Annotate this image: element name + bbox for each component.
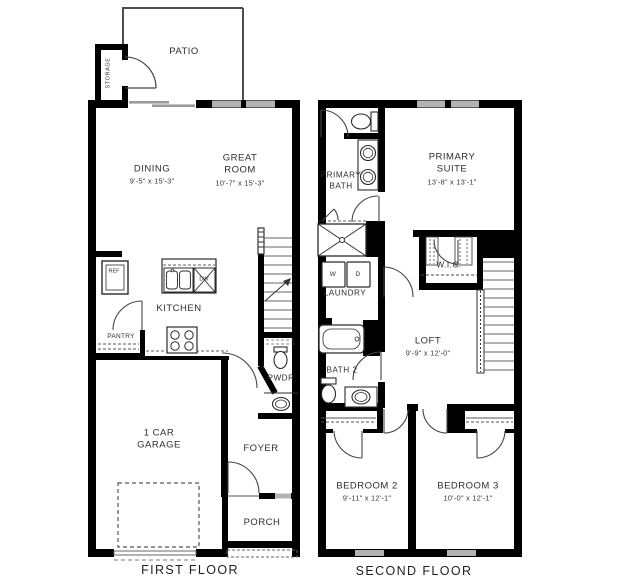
- bath2-sink-icon: [345, 387, 377, 407]
- storage-door-arc: [125, 57, 156, 88]
- refrigerator-icon: [102, 261, 128, 294]
- room-label-patio: PATIO: [169, 46, 199, 58]
- room-label-kitchen: KITCHEN: [156, 303, 201, 315]
- room-label-loft: LOFT 9'-9" x 12'-0": [406, 335, 451, 358]
- room-label-bath2: BATH 2: [326, 366, 357, 377]
- kitchen-sink-icon: [164, 268, 193, 292]
- room-label-garage: 1 CAR GARAGE: [135, 428, 183, 453]
- room-label-dining: DINING 9'-5" x 15'-3": [130, 163, 175, 186]
- room-label-bedroom2: BEDROOM 2 9'-11" x 12'-1": [336, 480, 398, 503]
- second-floor-title: SECOND FLOOR: [356, 563, 473, 579]
- window: [447, 550, 476, 556]
- ref-label: REF: [109, 268, 120, 275]
- bathtub-icon: [319, 325, 364, 353]
- primary-toilet-icon: [352, 112, 379, 131]
- floor-plan-drawing: [0, 0, 617, 582]
- interior-walls-first-floor: [88, 251, 300, 549]
- window: [212, 101, 241, 108]
- bedroom2-name: BEDROOM 2: [336, 480, 398, 492]
- pantry-shelves: [98, 344, 139, 349]
- bath2-toilet-icon: [321, 378, 336, 403]
- bedroom3-closet-door-arc: [477, 431, 505, 458]
- loft-name: LOFT: [406, 335, 451, 347]
- washer-label: W: [330, 271, 336, 279]
- window: [417, 101, 445, 108]
- first-floor-title: FIRST FLOOR: [141, 562, 239, 578]
- room-label-primary-bath: PRIMARY BATH: [315, 170, 367, 191]
- window: [246, 101, 275, 108]
- room-label-great-room: GREAT ROOM 10'-7" x 15'-3": [215, 152, 265, 187]
- dw-label: DW: [199, 276, 208, 283]
- room-label-wic: W.I.C.: [436, 261, 461, 272]
- shower-icon: [318, 221, 366, 256]
- loft-dims: 9'-9" x 12'-0": [406, 349, 451, 359]
- bedroom2-closet-door-arc: [334, 431, 362, 458]
- first-floor-plan: [88, 8, 300, 560]
- bedroom2-dims: 9'-11" x 12'-1": [336, 494, 398, 504]
- bedroom3-name: BEDROOM 3: [437, 480, 499, 492]
- hall-door-arc: [383, 267, 413, 297]
- primary-suite-door-arc: [352, 196, 379, 222]
- room-label-bedroom3: BEDROOM 3 10'-0" x 12'-1": [437, 480, 499, 503]
- pantry-door-arc: [113, 301, 142, 330]
- sliding-door: [129, 101, 169, 104]
- car-space: [118, 483, 199, 547]
- stair-up-arrow: [283, 278, 291, 286]
- room-label-storage: STORAGE: [105, 58, 112, 89]
- bedroom3-entry-door-arc: [423, 409, 447, 433]
- garage-door: [114, 551, 196, 560]
- garage-name: 1 CAR GARAGE: [135, 428, 183, 453]
- stove-icon: [146, 327, 228, 353]
- bedroom3-dims: 10'-0" x 12'-1": [437, 494, 499, 504]
- primary-suite-dims: 13'-8" x 13'-1": [424, 177, 480, 187]
- dining-dims: 9'-5" x 15'-3": [130, 177, 175, 187]
- dryer-label: D: [356, 271, 361, 279]
- bedroom-closet-rods: [321, 418, 513, 422]
- floor-plan-canvas: PATIO STORAGE DINING 9'-5" x 15'-3" GREA…: [0, 0, 617, 582]
- bedroom2-entry-door-arc: [384, 409, 408, 433]
- great-room-name: GREAT ROOM: [215, 152, 265, 177]
- window: [275, 494, 293, 499]
- room-label-pwdr: PWDR: [267, 374, 294, 385]
- room-label-pantry: PANTRY: [107, 333, 135, 341]
- dining-name: DINING: [130, 163, 175, 175]
- front-door-arc: [228, 462, 259, 493]
- porch-steps: [227, 550, 297, 557]
- primary-bath-name: PRIMARY BATH: [315, 170, 367, 191]
- pwdr-toilet-icon: [266, 340, 294, 369]
- room-label-porch: PORCH: [244, 517, 281, 529]
- window: [451, 101, 479, 108]
- room-label-primary-suite: PRIMARY SUITE 13'-8" x 13'-1": [424, 151, 480, 186]
- room-label-laundry: LAUNDRY: [324, 289, 366, 300]
- great-room-dims: 10'-7" x 15'-3": [215, 178, 265, 188]
- primary-suite-name: PRIMARY SUITE: [424, 151, 480, 176]
- window: [355, 550, 384, 556]
- room-label-foyer: FOYER: [243, 443, 278, 455]
